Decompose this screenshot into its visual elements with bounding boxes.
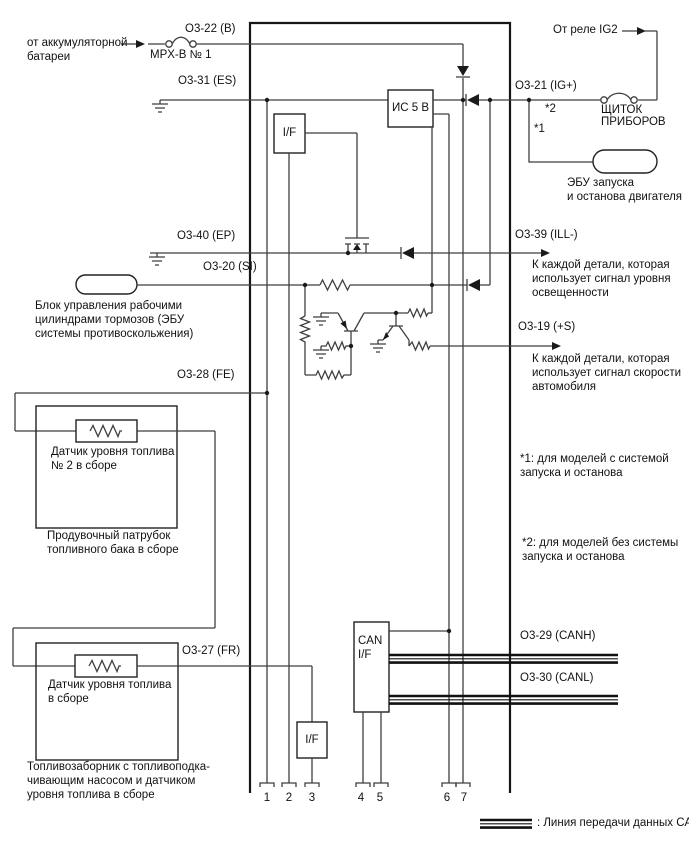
wiring-diagram-canvas: [0, 0, 689, 852]
resistor-icon: [90, 426, 122, 437]
can-bus-line-h: [389, 655, 618, 663]
panel-fuse-label: ЩИТОК ПРИБОРОВ: [601, 104, 666, 128]
main-fuse-symbol: [172, 37, 190, 44]
resistor-icon: [409, 342, 430, 350]
battery-source-label: от аккумуляторной батареи: [27, 36, 127, 64]
if-top-label: I/F: [274, 126, 305, 140]
fuel-sender2-label: Датчик уровня топлива № 2 в сборе: [51, 445, 174, 473]
resistor-icon: [321, 342, 351, 350]
start-stop-ecu-capsule: [593, 150, 657, 173]
pin-number-7: 7: [458, 791, 470, 805]
mosfet-arrow-icon: [353, 244, 361, 250]
ig2-arrow-icon: [637, 27, 646, 35]
panel-fuse-symbol: [607, 93, 631, 100]
panel-fuse-symbol: [631, 97, 637, 103]
diode-icon: [402, 247, 414, 259]
transistor-arrow-icon: [340, 321, 347, 330]
transistor-icon: [313, 313, 364, 346]
purge-tube-label: Продувочный патрубок топливного бака в с…: [47, 529, 179, 557]
start-stop-ecu-label: ЭБУ запуска и останова двигателя: [567, 176, 682, 204]
terminal-label-ep: O3-40 (EP): [177, 229, 235, 243]
brake-actuator-label: Блок управления рабочими цилиндрами торм…: [35, 299, 193, 341]
diode-icon: [468, 279, 480, 291]
main-fuse-label: MPX-B № 1: [150, 48, 212, 62]
terminal-label-es: O3-31 (ES): [178, 74, 236, 88]
star1-mark: *1: [534, 122, 545, 136]
fuel-sender1-label: Датчик уровня топлива в сборе: [48, 678, 171, 706]
terminal-label-fe: O3-28 (FE): [177, 368, 235, 382]
model-note-2: *2: для моделей без системы запуска и ос…: [522, 536, 678, 564]
can-legend-label: : Линия передачи данных CAN: [537, 816, 689, 830]
pin-number-2: 2: [283, 791, 295, 805]
ic-5v-label: ИС 5 В: [388, 101, 433, 115]
ground-symbol: [313, 346, 329, 358]
terminal-label-s-plus: O3-19 (+S): [518, 320, 575, 334]
resistor-icon: [89, 661, 121, 672]
star2-mark: *2: [545, 102, 556, 116]
can-bus-line-l: [389, 696, 618, 704]
legend-can-symbol: [480, 820, 532, 828]
ground-symbol-ep: [149, 253, 165, 265]
pin-number-4: 4: [355, 791, 367, 805]
illumination-note: К каждой детали, которая использует сигн…: [532, 258, 671, 300]
resistor-icon: [301, 316, 310, 344]
terminal-label-b: O3-22 (B): [185, 22, 236, 36]
pin-number-1: 1: [261, 791, 273, 805]
ill-arrow-icon: [541, 249, 550, 257]
terminal-label-ill: O3-39 (ILL-): [515, 228, 578, 242]
brake-ecu-capsule: [76, 275, 137, 294]
resistor-icon: [320, 280, 350, 290]
fuel-pump-label: Топливозаборник с топливоподка- чивающим…: [27, 760, 210, 802]
terminal-label-fr: O3-27 (FR): [182, 644, 240, 658]
if-bottom-label: I/F: [297, 733, 327, 747]
pin-number-5: 5: [374, 791, 386, 805]
pin-number-3: 3: [306, 791, 318, 805]
fuel-sender1-resistor: [75, 655, 137, 677]
transistor-icon: [370, 313, 409, 352]
terminal-label-ig: O3-21 (IG+): [515, 79, 577, 93]
wiring-diagram: O3-22 (B) от аккумуляторной батареи MPX-…: [0, 0, 689, 852]
terminal-label-si: O3-20 (SI): [203, 260, 257, 274]
battery-arrow-icon: [136, 40, 145, 48]
fuel-sender2-resistor: [76, 420, 137, 442]
pin-terminal-marks: [260, 783, 470, 787]
diode-icon: [457, 66, 469, 76]
panel-fuse-symbol: [601, 97, 607, 103]
s-arrow-icon: [552, 342, 561, 350]
main-fuse-symbol: [190, 41, 196, 47]
ig2-relay-label: От реле IG2: [553, 23, 618, 37]
ground-symbol-es: [152, 100, 168, 112]
can-if-label: CAN I/F: [358, 634, 382, 662]
terminal-label-canl: O3-30 (CANL): [520, 671, 594, 685]
terminal-label-canh: O3-29 (CANH): [520, 629, 595, 643]
main-fuse-symbol: [166, 41, 172, 47]
speed-note: К каждой детали, которая использует сигн…: [532, 352, 681, 394]
diode-icon: [467, 94, 479, 106]
resistor-icon: [408, 309, 428, 317]
resistor-icon: [305, 371, 351, 379]
diode-icon: [456, 77, 470, 100]
pin-number-6: 6: [441, 791, 453, 805]
model-note-1: *1: для моделей с системой запуска и ост…: [520, 452, 669, 480]
